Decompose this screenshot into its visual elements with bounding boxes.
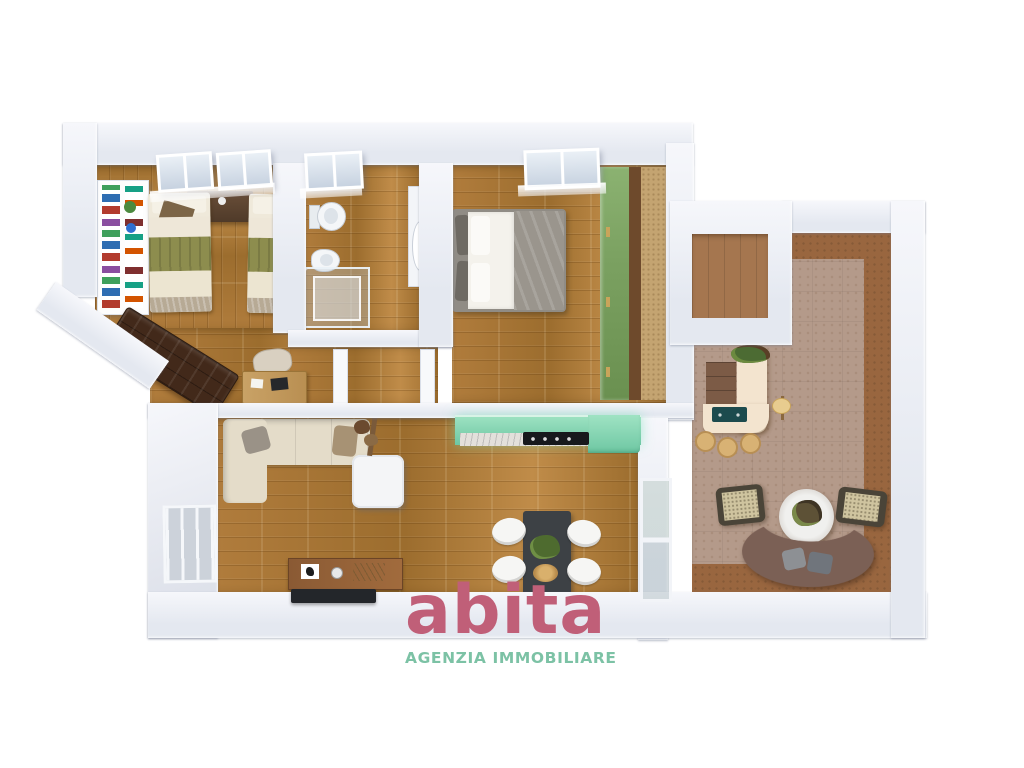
bar-grill — [712, 407, 747, 422]
wardrobe-green — [600, 167, 631, 400]
storage-alcove-floor — [692, 234, 768, 318]
twin-bed-left — [148, 192, 212, 312]
terrace-border-right — [864, 233, 891, 592]
shower-enclosure — [303, 267, 370, 328]
bookshelf — [97, 180, 149, 315]
curved-sofa-pillow — [806, 551, 833, 575]
double-bed — [452, 209, 566, 312]
bar-plant-icon — [731, 345, 770, 363]
wall-left-upper — [63, 123, 97, 297]
cooktop — [523, 432, 589, 445]
kitchen-counter-corner — [588, 415, 640, 453]
coffee-table — [352, 455, 404, 508]
plant-centerpiece-icon — [530, 535, 560, 559]
wardrobe-frame — [629, 167, 641, 400]
branch-decor — [353, 563, 385, 581]
terrace-chair-right — [835, 486, 888, 528]
bar-stool — [717, 437, 738, 458]
toilet — [309, 202, 347, 230]
floor-lamp — [772, 396, 798, 422]
laptop-icon — [270, 377, 288, 391]
bar-stool — [695, 431, 716, 452]
desk — [242, 371, 307, 404]
glass-door-terrace — [640, 478, 672, 602]
wall-terrace-right — [891, 201, 925, 638]
wall-bath-bedroom — [419, 163, 453, 347]
plant-icon — [124, 201, 136, 213]
clock-icon — [331, 567, 343, 579]
hall-door-left — [333, 349, 348, 404]
terrace-chair-left — [715, 484, 766, 527]
logo-tagline: AGENZIA IMMOBILIARE — [405, 649, 617, 667]
floor-hallway — [288, 345, 438, 405]
sideboard — [288, 558, 403, 590]
rooster-picture-icon — [306, 567, 314, 576]
window-left-wall — [162, 505, 217, 584]
bar-stool — [740, 433, 761, 454]
tv-panel — [291, 589, 376, 603]
floorplan-render: abita AGENZIA IMMOBILIARE — [0, 0, 1024, 768]
agency-logo: abita AGENZIA IMMOBILIARE — [405, 581, 617, 667]
outdoor-bar-cabinets — [706, 362, 736, 405]
logo-wordmark: abita — [405, 581, 617, 641]
hall-door-right — [420, 349, 435, 404]
